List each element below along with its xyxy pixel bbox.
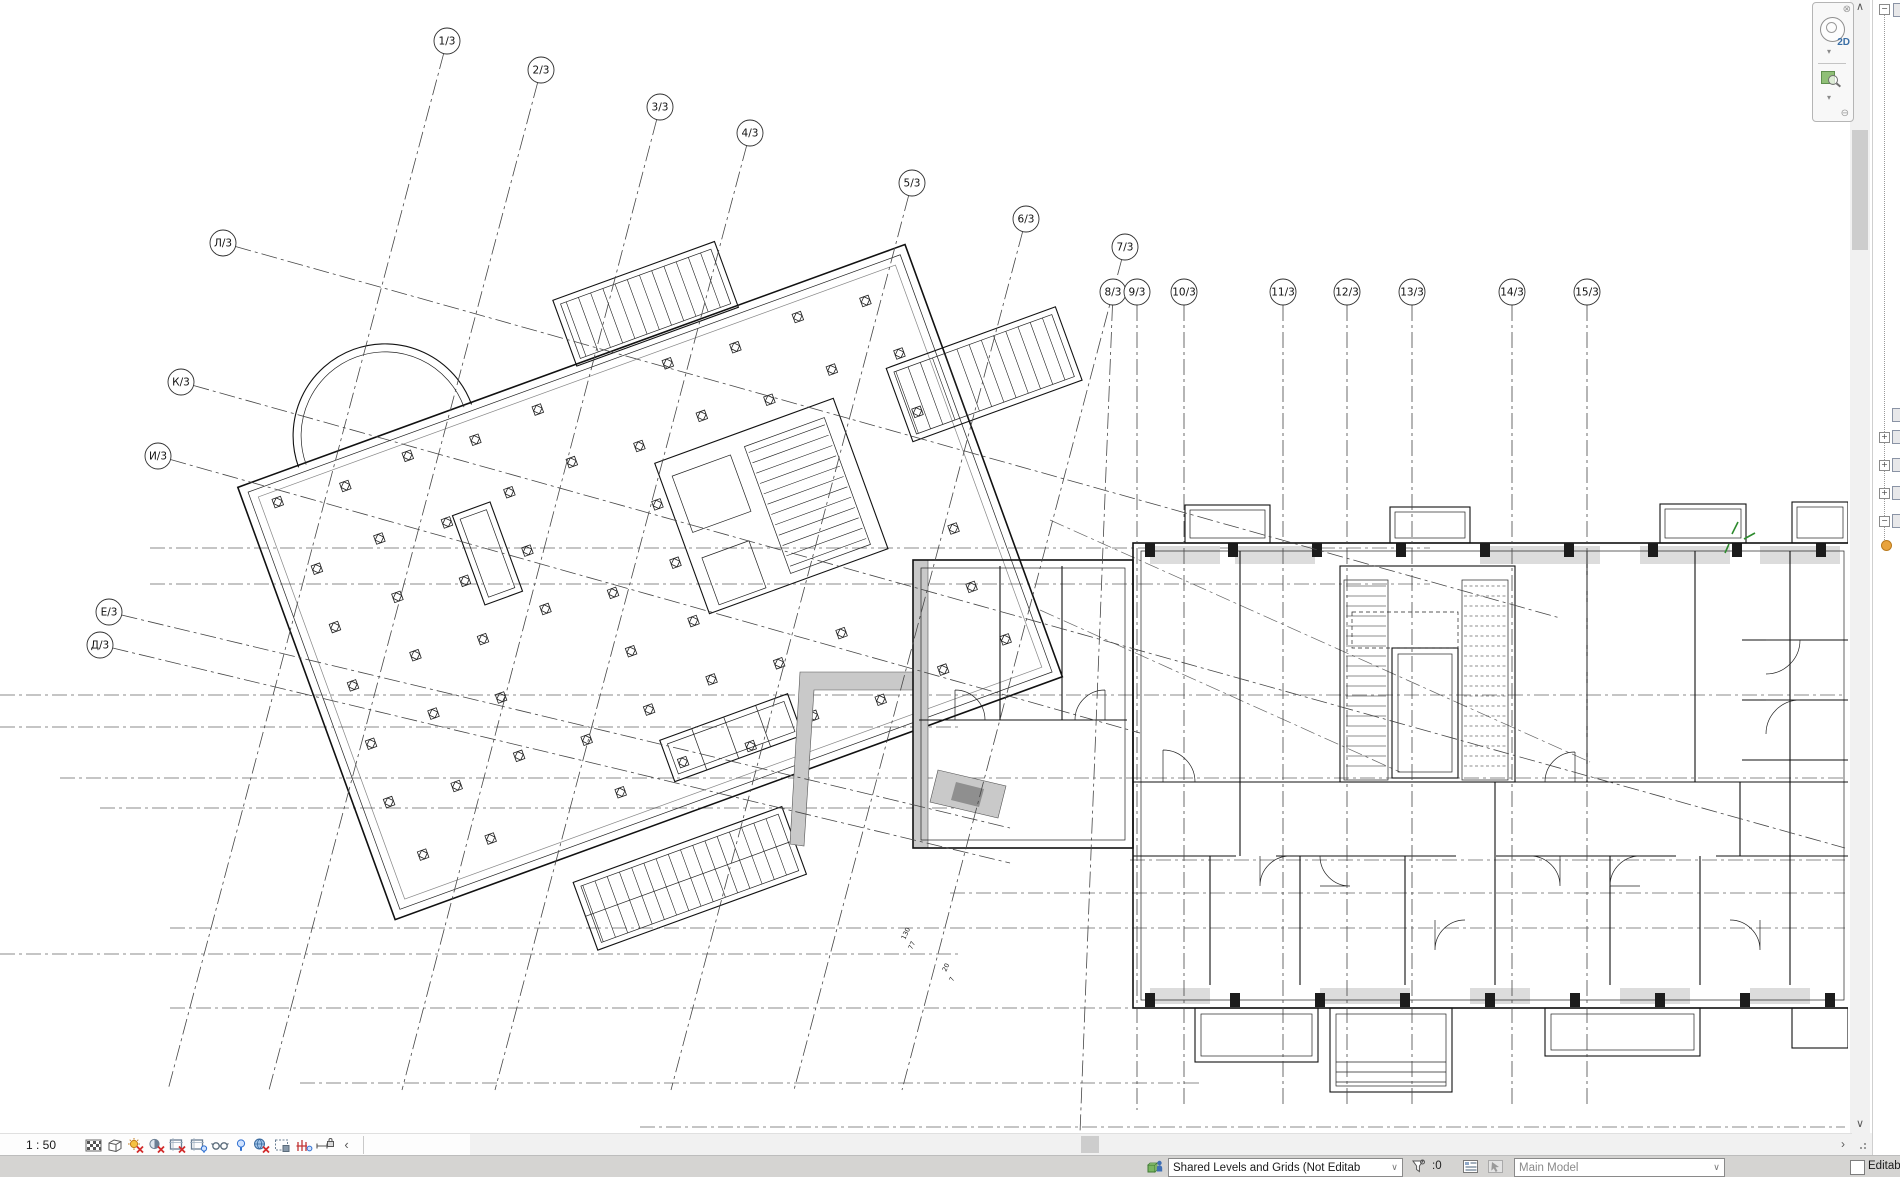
ramp: [660, 694, 803, 782]
grid-bubble-label: 6/3: [1018, 214, 1035, 226]
wheel-options-caret[interactable]: ▾: [1827, 47, 1831, 56]
drawing-area[interactable]: 130 77 20 7 1/32/33/34/35/36/37/38/39/31…: [0, 0, 1848, 1133]
grid-bubble-label: 8/3: [1105, 287, 1122, 299]
grid-bubbles-layer: 1/32/33/34/35/36/37/38/39/310/311/312/31…: [87, 28, 1600, 658]
zoom-tool-button[interactable]: [1821, 69, 1843, 89]
resize-grip[interactable]: [1852, 1133, 1872, 1155]
tree-family-icon: [1881, 540, 1892, 551]
tree-expand-box[interactable]: +: [1879, 460, 1890, 471]
door-swings: [1163, 640, 1800, 950]
grid-lines-layer: [113, 54, 1845, 1133]
worksets-icon: [1146, 1158, 1164, 1175]
grid-bubble-label: Л/3: [214, 238, 232, 250]
shadows-off-icon[interactable]: [147, 1137, 168, 1154]
grid-bubble-label: 14/3: [1500, 287, 1524, 299]
grid-bubble-label: Д/3: [91, 640, 109, 652]
grid-bubble-label: 10/3: [1172, 287, 1196, 299]
filter-icon[interactable]: [1410, 1158, 1428, 1175]
stair-core-left-wing: [655, 398, 888, 613]
vertical-scrollbar[interactable]: ∧ ∨: [1850, 0, 1870, 1133]
grid-bubble-label: 2/3: [533, 65, 550, 77]
tree-item-icon: [1892, 430, 1900, 444]
right-wing: [1133, 502, 1848, 1092]
selection-count: :0: [1432, 1160, 1442, 1172]
temporary-hide-isolate-icon[interactable]: [210, 1137, 231, 1154]
temporary-view-properties-icon[interactable]: [273, 1137, 294, 1154]
tree-item-icon: [1892, 514, 1900, 528]
tree-collapse-box[interactable]: −: [1879, 4, 1890, 15]
sun-path-off-icon[interactable]: [126, 1137, 147, 1154]
status-bar: Shared Levels and Grids (Not Editab ∨ :0…: [0, 1155, 1900, 1177]
connector-block: [790, 560, 1133, 848]
wheel-icon: [1826, 22, 1837, 33]
grid-bubble-label: 3/3: [652, 102, 669, 114]
balconies: [1195, 1008, 1848, 1092]
wall-piers: [1145, 543, 1835, 1007]
grid-line[interactable]: [402, 120, 657, 1090]
grid-bubble-label: 9/3: [1129, 287, 1146, 299]
crop-view-off-icon[interactable]: [168, 1137, 189, 1154]
vertical-scroll-thumb[interactable]: [1852, 130, 1868, 250]
grid-line[interactable]: [168, 54, 444, 1090]
scale-button[interactable]: 1 : 50: [26, 1138, 56, 1152]
grid-bubble-label: 15/3: [1575, 287, 1599, 299]
tree-item-icon: [1892, 458, 1900, 472]
grid-bubble-label: 12/3: [1335, 287, 1359, 299]
stair-strip-right: [886, 307, 1082, 442]
steering-wheel-2d-button[interactable]: 2D: [1820, 17, 1845, 42]
grid-bubble-label: К/3: [172, 377, 190, 389]
tree-expand-box[interactable]: +: [1879, 432, 1890, 443]
revit-window: 130 77 20 7 1/32/33/34/35/36/37/38/39/31…: [0, 0, 1900, 1177]
grid-line[interactable]: [122, 615, 1010, 828]
grid-line[interactable]: [236, 247, 1560, 618]
analytical-model-icon[interactable]: [294, 1137, 315, 1154]
active-design-option-dropdown[interactable]: Main Model ∨: [1514, 1158, 1725, 1177]
viewbar-collapse-arrow[interactable]: ‹: [336, 1137, 357, 1154]
grid-line[interactable]: [194, 386, 1845, 848]
view-control-bar: 1 : 50: [0, 1134, 470, 1156]
tree-collapse-box[interactable]: −: [1879, 516, 1890, 527]
grid-bubble-label: 1/3: [439, 36, 456, 48]
dropdown-arrow-icon: ∨: [1709, 1162, 1724, 1173]
tree-item-icon: [1892, 408, 1900, 422]
svg-text:7: 7: [948, 976, 957, 983]
worksharing-display-off-icon[interactable]: [252, 1137, 273, 1154]
partition-walls: [1133, 551, 1848, 985]
reveal-hidden-elements-icon[interactable]: [231, 1137, 252, 1154]
editable-only-checkbox[interactable]: [1850, 1160, 1865, 1175]
svg-text:77: 77: [907, 940, 918, 951]
show-crop-region-icon[interactable]: [189, 1137, 210, 1154]
viewbar-separator: [363, 1136, 364, 1154]
floor-plan-view[interactable]: 130 77 20 7 1/32/33/34/35/36/37/38/39/31…: [0, 0, 1848, 1133]
visual-style-icon[interactable]: [105, 1137, 126, 1154]
grid-line[interactable]: [269, 83, 538, 1090]
tree-expand-box[interactable]: +: [1879, 488, 1890, 499]
grid-bubble-label: Е/3: [101, 607, 118, 619]
detail-level-icon[interactable]: [84, 1137, 105, 1154]
grid-bubble-label: 5/3: [904, 178, 921, 190]
grid-bubble-label: 4/3: [742, 128, 759, 140]
navigation-bar: ⊗ 2D ▾ ▾ ⊖: [1812, 2, 1854, 122]
reveal-constraints-icon[interactable]: [315, 1137, 336, 1154]
bottom-row: 1 : 50: [0, 1133, 1852, 1156]
stair-strip-bottom: [573, 807, 806, 951]
navbar-divider: [1818, 63, 1846, 64]
shaft: [452, 502, 522, 605]
slope-annotations: 130 77 20 7: [900, 926, 957, 983]
scroll-down-arrow[interactable]: ∨: [1850, 1117, 1870, 1133]
dropdown-arrow-icon: ∨: [1387, 1162, 1402, 1173]
horizontal-scroll-thumb[interactable]: [1081, 1136, 1099, 1153]
design-options-icon[interactable]: [1462, 1158, 1480, 1175]
navbar-minimize-icon[interactable]: ⊖: [1841, 108, 1849, 119]
active-workset-dropdown[interactable]: Shared Levels and Grids (Not Editab ∨: [1168, 1158, 1403, 1177]
scroll-right-arrow[interactable]: ›: [1834, 1134, 1852, 1156]
project-browser-strip: − + + + −: [1872, 0, 1900, 1155]
grid-line[interactable]: [1080, 305, 1112, 1133]
grid-bubble-label: 7/3: [1117, 242, 1134, 254]
grid-bubble-label: 11/3: [1271, 287, 1295, 299]
grid-bubble-label: 13/3: [1400, 287, 1424, 299]
grid-line[interactable]: [671, 196, 909, 1090]
pick-to-edit-icon[interactable]: [1487, 1158, 1505, 1175]
navbar-close-icon[interactable]: ⊗: [1843, 4, 1851, 15]
zoom-options-caret[interactable]: ▾: [1827, 93, 1831, 102]
arched-bay: [267, 318, 471, 467]
editable-only-label: Editab: [1868, 1160, 1900, 1172]
left-wing: [207, 119, 1209, 1012]
tree-item-icon: [1892, 486, 1900, 500]
svg-text:130: 130: [900, 926, 913, 941]
grid-bubble-label: И/3: [149, 451, 167, 463]
svg-text:20: 20: [941, 962, 952, 973]
tree-item-icon: [1893, 3, 1900, 17]
